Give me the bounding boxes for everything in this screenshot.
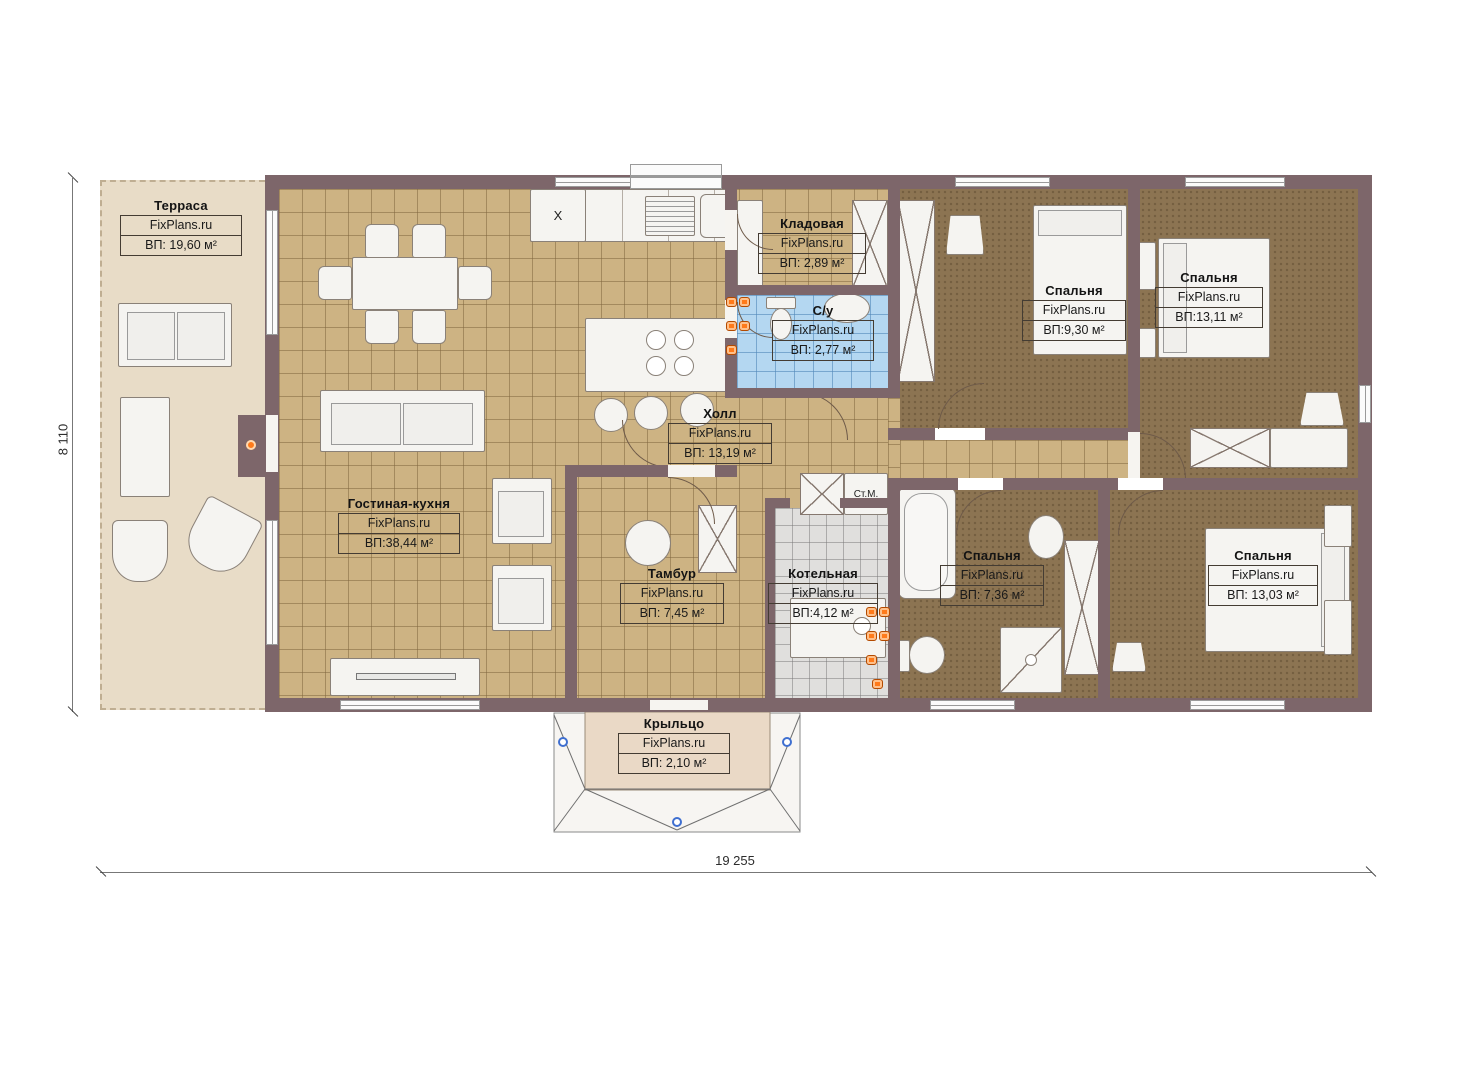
dimension-line-vertical	[72, 178, 73, 712]
hall-closet	[897, 200, 935, 382]
room-area: ВП: 13,03 м²	[1209, 585, 1317, 605]
wall-bath-bottom	[737, 388, 888, 398]
wall-corridor-bottom-c	[1163, 478, 1358, 490]
room-name: Крыльцо	[618, 716, 730, 731]
room-label-vestibule: Тамбур FixPlans.ru ВП: 7,45 м²	[620, 566, 724, 624]
floor-plan: 8 110 19 255	[0, 0, 1474, 1080]
room-area: ВП: 2,89 м²	[759, 253, 865, 273]
room-area: ВП: 7,36 м²	[941, 585, 1043, 605]
wall-vestibule-top-b	[715, 465, 737, 477]
watermark: FixPlans.ru	[619, 734, 729, 753]
room-area: ВП:9,30 м²	[1023, 320, 1125, 340]
watermark: FixPlans.ru	[339, 514, 459, 533]
washing-machine: Ст.М.	[844, 473, 888, 515]
room-label-boiler: Котельная FixPlans.ru ВП:4,12 м²	[768, 566, 878, 624]
armchair	[492, 478, 552, 544]
door-gap-storage	[725, 210, 737, 250]
room-area: ВП:13,11 м²	[1156, 307, 1262, 327]
room-label-storage: Кладовая FixPlans.ru ВП: 2,89 м²	[758, 216, 866, 274]
wall-corridor-bottom-a	[888, 478, 958, 490]
door-gap-vestibule	[668, 465, 715, 477]
radiator	[739, 321, 750, 331]
room-label-bedroom3: Спальня FixPlans.ru ВП: 7,36 м²	[940, 548, 1044, 606]
watermark: FixPlans.ru	[759, 234, 865, 253]
dresser	[1270, 428, 1348, 468]
room-name: Спальня	[940, 548, 1044, 563]
room-area: ВП: 2,77 м²	[773, 340, 873, 360]
wardrobe	[1190, 428, 1270, 468]
dining-chair	[412, 310, 446, 344]
radiator	[866, 655, 877, 665]
radiator	[879, 631, 890, 641]
tv-stand	[330, 658, 480, 696]
room-name: Терраса	[120, 198, 242, 213]
dining-chair	[318, 266, 352, 300]
wall-vestibule-left	[565, 465, 577, 698]
room-name: Кладовая	[758, 216, 866, 231]
watermark: FixPlans.ru	[773, 321, 873, 340]
radiator	[726, 321, 737, 331]
watermark: FixPlans.ru	[621, 584, 723, 603]
dimension-line-horizontal	[100, 872, 1372, 873]
window-bay-kitchen	[630, 164, 722, 189]
wall-kitchen-storage-a	[725, 189, 737, 210]
terrace-chair-1	[112, 520, 168, 582]
radiator	[739, 297, 750, 307]
room-area: ВП: 2,10 м²	[619, 753, 729, 773]
wall-boiler-top-b	[840, 498, 888, 508]
dimension-width-label: 19 255	[680, 853, 790, 868]
living-sofa	[320, 390, 485, 452]
window-bedroom1	[955, 177, 1050, 187]
hall-cabinet	[800, 473, 844, 515]
fridge-symbol: X	[554, 208, 563, 223]
shelf	[1324, 600, 1352, 655]
cabinet	[1064, 540, 1100, 675]
watermark: FixPlans.ru	[121, 216, 241, 235]
room-label-living-kitchen: Гостиная-кухня FixPlans.ru ВП:38,44 м²	[338, 496, 460, 554]
nightstand	[1138, 328, 1156, 358]
watermark: FixPlans.ru	[1156, 288, 1262, 307]
entry-door-porch[interactable]	[650, 700, 708, 710]
dining-chair	[412, 224, 446, 258]
shower	[1000, 627, 1062, 693]
window-living	[340, 700, 480, 710]
room-area: ВП: 13,19 м²	[669, 443, 771, 463]
dimension-height-label: 8 110	[56, 405, 71, 475]
nightstand	[1138, 242, 1156, 290]
window-right	[1359, 385, 1371, 423]
room-name: Гостиная-кухня	[338, 496, 460, 511]
wall-zone-divider-top	[888, 189, 900, 398]
dimension-tick	[68, 172, 79, 183]
dimension-tick	[68, 706, 79, 717]
wall-right	[1358, 175, 1372, 712]
door-gap-bedroom2	[1128, 432, 1140, 478]
room-name: Спальня	[1155, 270, 1263, 285]
room-area: ВП: 7,45 м²	[621, 603, 723, 623]
watermark: FixPlans.ru	[769, 584, 877, 603]
nightstand	[946, 215, 984, 255]
dining-chair	[365, 224, 399, 258]
window-bedroom2	[1185, 177, 1285, 187]
shelf	[1324, 505, 1352, 547]
cooktop	[642, 326, 706, 384]
wall-bedroom1-bottom-a	[888, 428, 935, 440]
wall-kitchen-storage-b	[725, 250, 737, 300]
radiator	[879, 607, 890, 617]
toilet-bowl	[909, 636, 945, 674]
room-name: Тамбур	[620, 566, 724, 581]
hall-corridor-floor	[900, 440, 1128, 478]
room-name: Спальня	[1022, 283, 1126, 298]
terrace-sofa	[118, 303, 232, 367]
wall-bedroom1-bedroom2	[1128, 189, 1140, 432]
room-name: С/у	[772, 303, 874, 318]
stool	[1300, 392, 1344, 426]
wall-bedroom1-bottom-b	[985, 428, 1128, 440]
wall-zone-divider-bottom	[888, 478, 900, 698]
room-area: ВП:38,44 м²	[339, 533, 459, 553]
wall-storage-bath	[737, 285, 888, 295]
room-label-bedroom2: Спальня FixPlans.ru ВП:13,11 м²	[1155, 270, 1263, 328]
dining-table	[352, 257, 458, 310]
terrace-table	[120, 397, 170, 497]
room-label-terrace: Терраса FixPlans.ru ВП: 19,60 м²	[120, 198, 242, 256]
terrace-light	[246, 440, 256, 450]
watermark: FixPlans.ru	[669, 424, 771, 443]
room-label-bathroom: С/у FixPlans.ru ВП: 2,77 м²	[772, 303, 874, 361]
room-label-bedroom4: Спальня FixPlans.ru ВП: 13,03 м²	[1208, 548, 1318, 606]
room-area: ВП: 19,60 м²	[121, 235, 241, 255]
dining-chair	[365, 310, 399, 344]
room-name: Спальня	[1208, 548, 1318, 563]
window-terrace-2	[266, 520, 278, 645]
room-label-hall: Холл FixPlans.ru ВП: 13,19 м²	[668, 406, 772, 464]
radiator	[726, 345, 737, 355]
stove	[645, 196, 695, 236]
watermark: FixPlans.ru	[1023, 301, 1125, 320]
room-label-bedroom1: Спальня FixPlans.ru ВП:9,30 м²	[1022, 283, 1126, 341]
radiator	[866, 631, 877, 641]
wall-bedroom3-bedroom4	[1098, 478, 1110, 698]
watermark: FixPlans.ru	[941, 566, 1043, 585]
room-name: Котельная	[768, 566, 878, 581]
armchair	[492, 565, 552, 631]
fridge: X	[530, 189, 586, 242]
stool	[1112, 642, 1146, 672]
terrace-door[interactable]	[266, 415, 278, 472]
watermark: FixPlans.ru	[1209, 566, 1317, 585]
dining-chair	[458, 266, 492, 300]
wall-vestibule-top-a	[565, 465, 668, 477]
vestibule-pouf	[625, 520, 671, 566]
room-label-porch: Крыльцо FixPlans.ru ВП: 2,10 м²	[618, 716, 730, 774]
radiator	[872, 679, 883, 689]
radiator	[726, 297, 737, 307]
window-kitchen	[555, 177, 640, 187]
window-bedroom3	[930, 700, 1015, 710]
room-area: ВП:4,12 м²	[769, 603, 877, 623]
room-name: Холл	[668, 406, 772, 421]
window-terrace-1	[266, 210, 278, 335]
window-bedroom4	[1190, 700, 1285, 710]
